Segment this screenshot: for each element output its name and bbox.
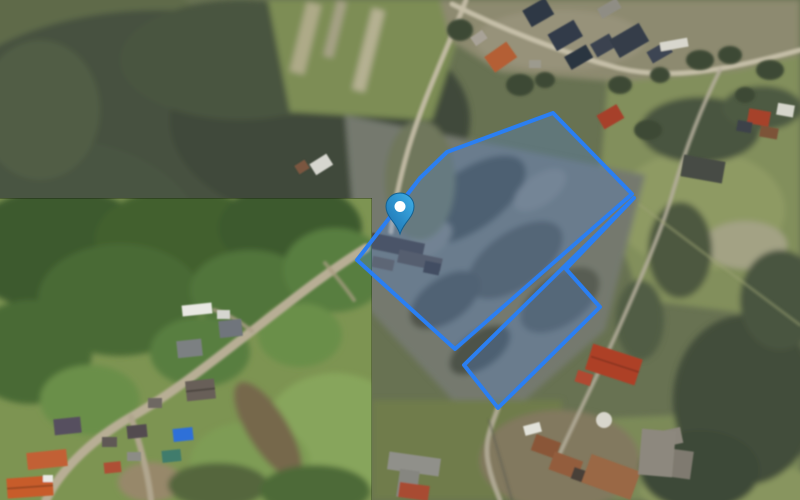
inset-top-seam <box>0 198 372 199</box>
pin-dot <box>395 201 406 212</box>
map-svg <box>0 0 800 500</box>
map-canvas[interactable] <box>0 0 800 500</box>
inset-aerial-photo <box>0 183 407 500</box>
